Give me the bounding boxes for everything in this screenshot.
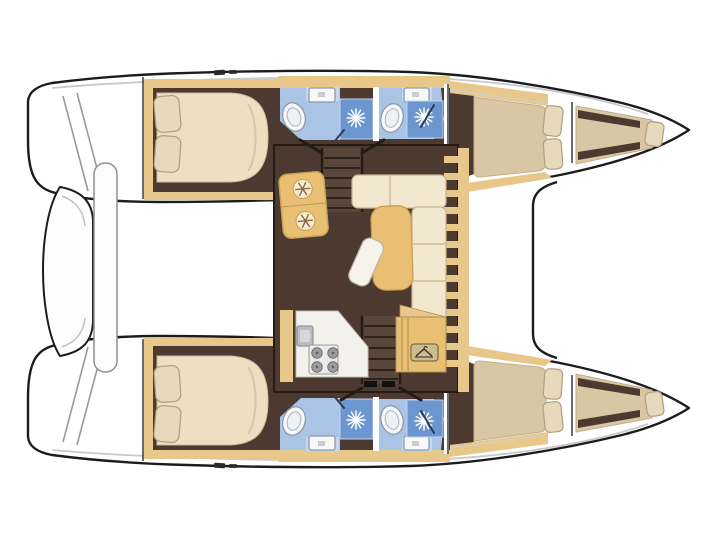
bathroom-forward [378, 87, 444, 139]
fridge-freezer-unit [278, 171, 328, 239]
wardrobe [396, 305, 446, 372]
pillow [644, 121, 664, 147]
pillow [542, 105, 563, 137]
deck-hatch [229, 70, 237, 74]
double-bed [474, 97, 546, 177]
galley-wood-trim [280, 310, 293, 382]
pillow [153, 95, 181, 133]
forward-wall-trim [458, 148, 469, 392]
galley-sink [297, 326, 313, 346]
pillow [543, 138, 563, 169]
saloon [274, 140, 469, 400]
hanger-icon [411, 344, 438, 361]
pillow [154, 135, 181, 173]
aft-cabin [144, 79, 280, 200]
catamaran-floorplan [0, 0, 720, 540]
floorplan-drawing [0, 0, 720, 540]
aft-crossbeam [94, 163, 117, 372]
stern-platform-area [43, 163, 117, 372]
stove-icon [309, 345, 338, 374]
bathroom-wood-trim [278, 76, 450, 88]
dinghy [43, 187, 93, 356]
stair-handle [382, 381, 395, 387]
sink-faucet [412, 92, 419, 97]
sink-faucet [318, 92, 325, 97]
forward-crossbeam [533, 182, 557, 358]
bathroom-divider-wall [373, 87, 379, 141]
deck-hatch [214, 70, 225, 76]
sofa-top [352, 175, 446, 208]
stair-handle [364, 381, 377, 387]
